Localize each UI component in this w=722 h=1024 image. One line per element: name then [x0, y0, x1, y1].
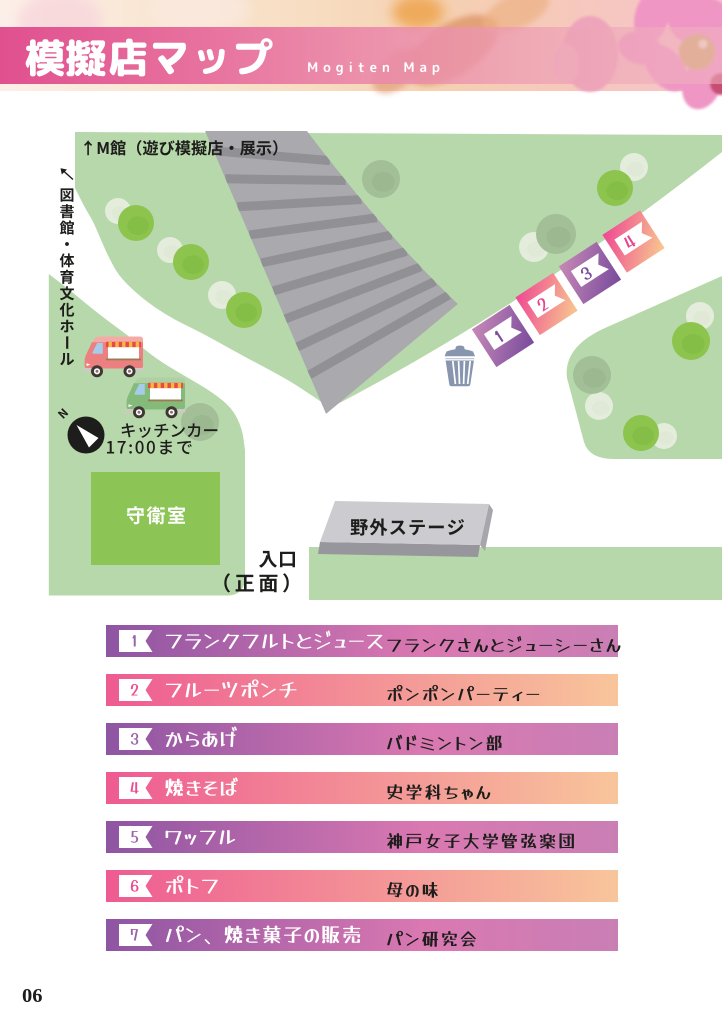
svg-text:06: 06 — [22, 985, 43, 1007]
